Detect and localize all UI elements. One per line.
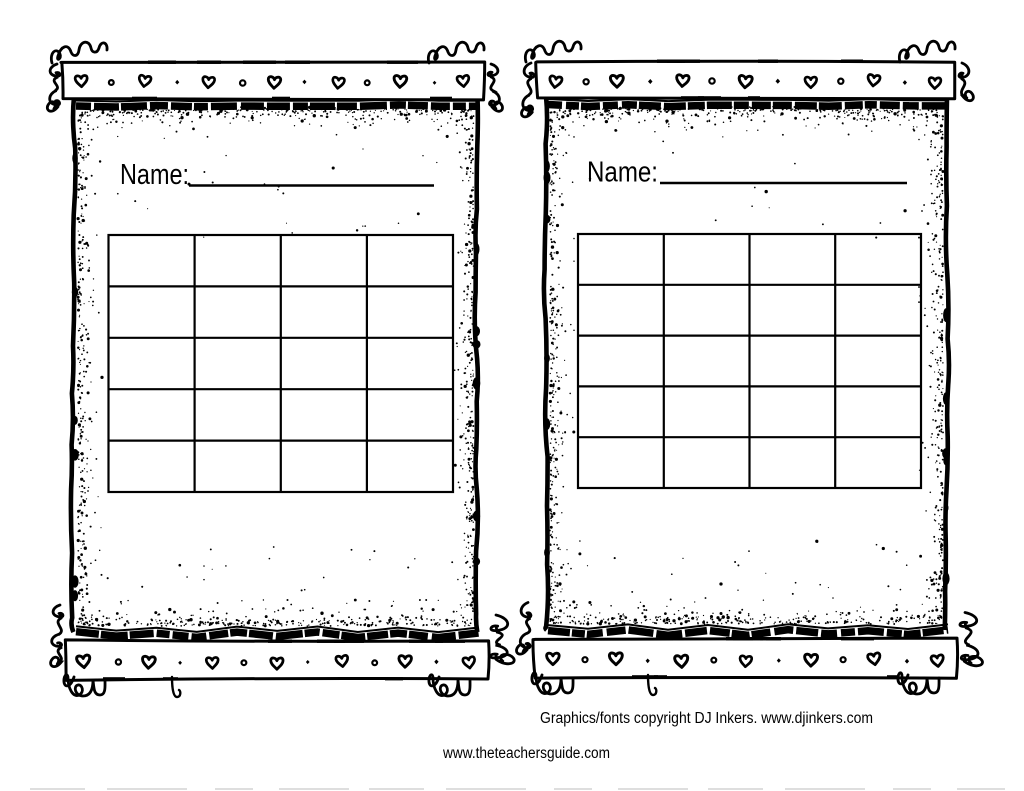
svg-text:Name:: Name: — [587, 157, 658, 189]
svg-text:Graphics/fonts copyright DJ In: Graphics/fonts copyright DJ Inkers. www.… — [540, 710, 873, 727]
svg-text:www.theteachersguide.com: www.theteachersguide.com — [442, 745, 610, 762]
svg-text:Name:: Name: — [120, 159, 189, 191]
